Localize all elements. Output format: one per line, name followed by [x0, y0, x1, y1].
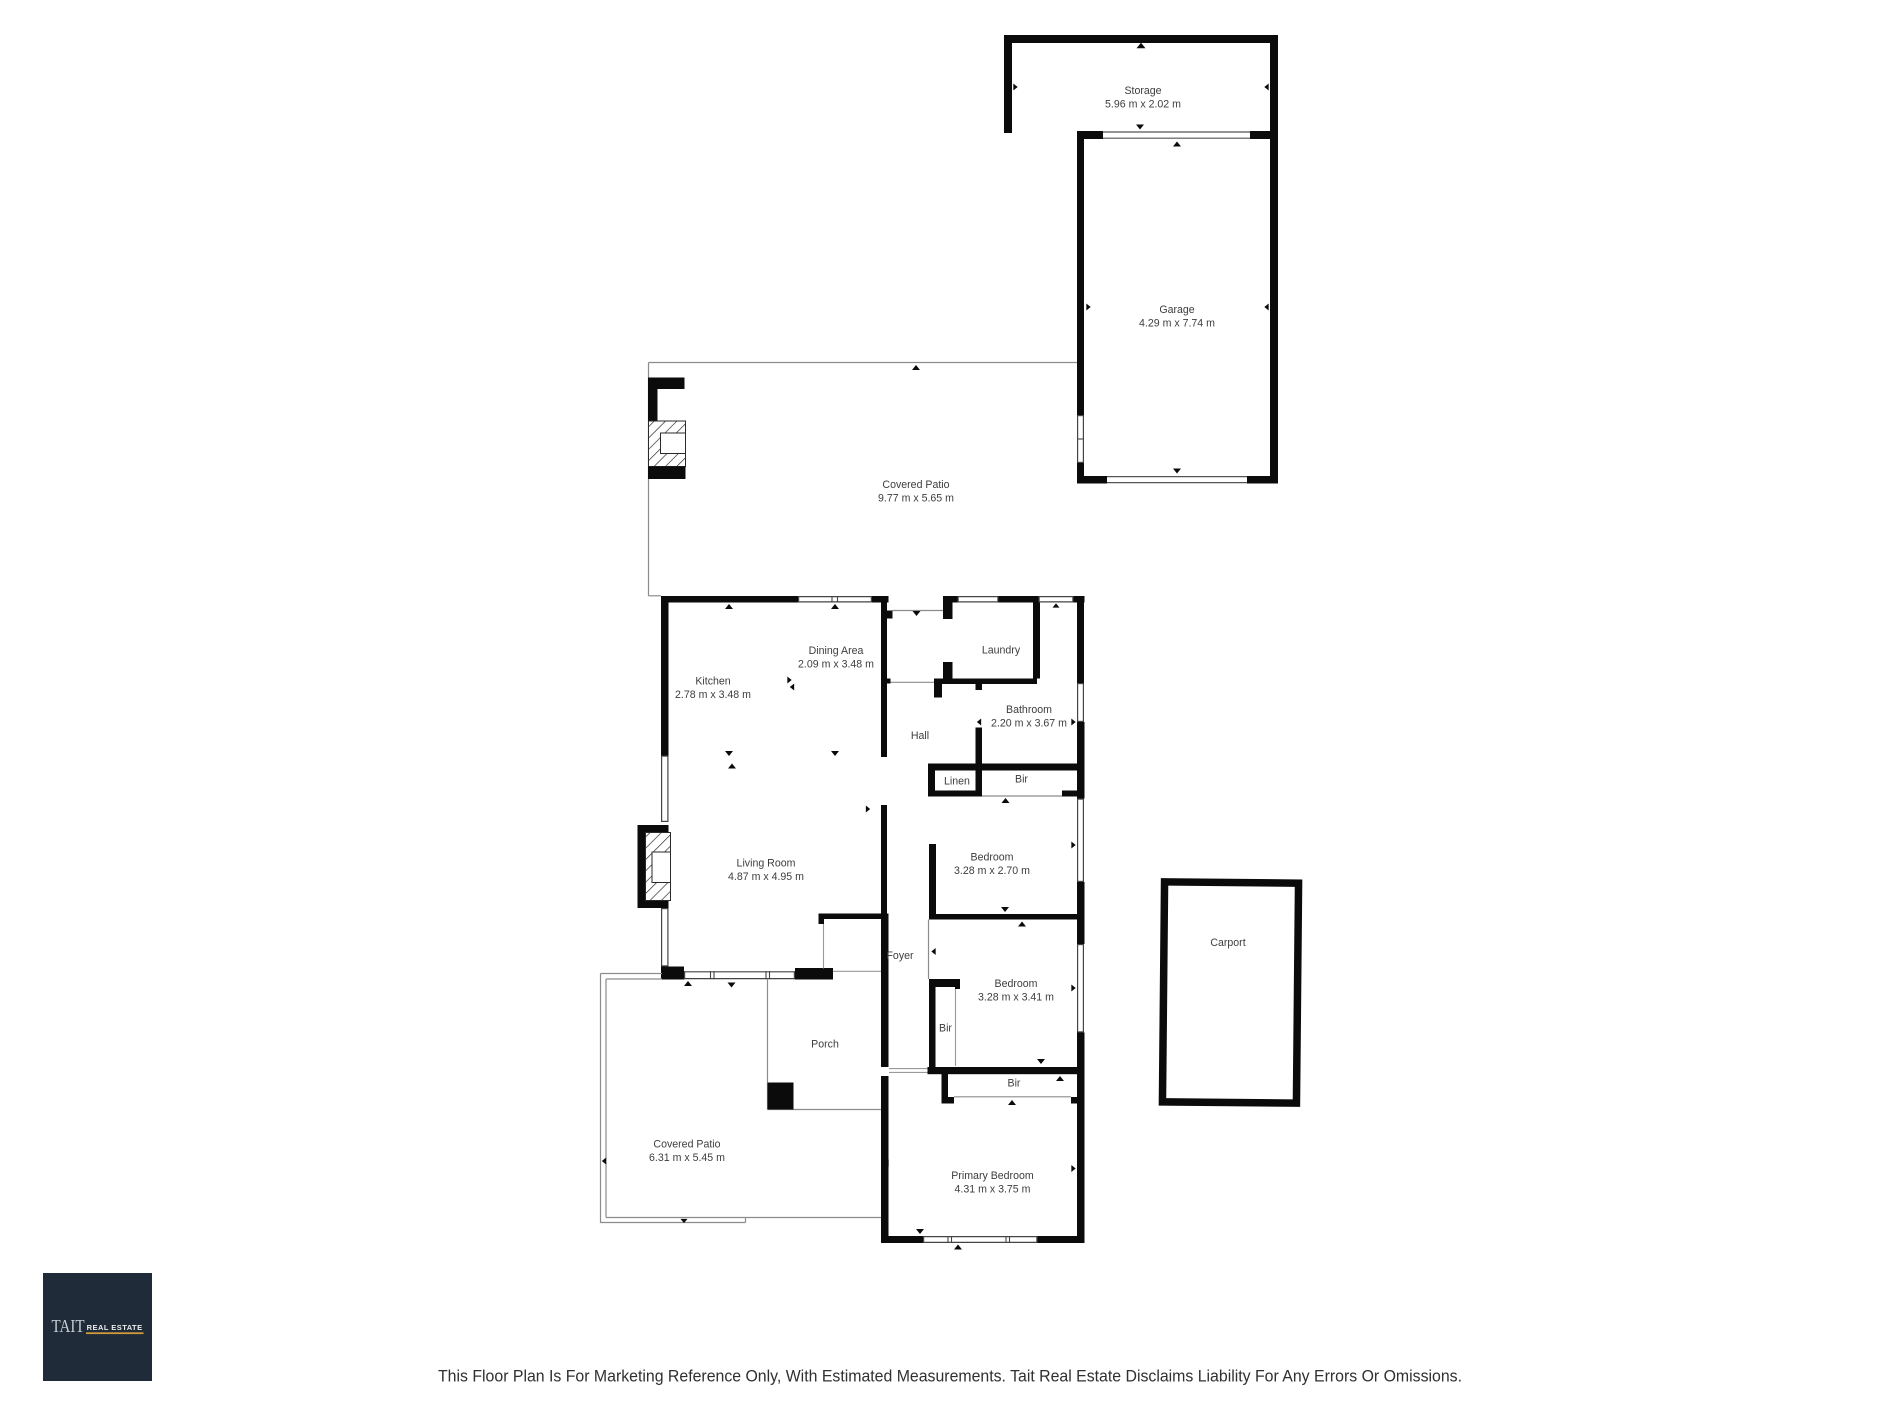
svg-text:Bedroom: Bedroom: [995, 978, 1038, 990]
svg-text:3.28 m x 3.41 m: 3.28 m x 3.41 m: [978, 992, 1054, 1004]
svg-text:4.31 m x 3.75 m: 4.31 m x 3.75 m: [955, 1184, 1031, 1196]
svg-text:2.20 m x 3.67 m: 2.20 m x 3.67 m: [991, 718, 1067, 730]
svg-text:Porch: Porch: [811, 1038, 839, 1050]
svg-text:2.09 m x 3.48 m: 2.09 m x 3.48 m: [798, 659, 874, 671]
svg-text:3.28 m x 2.70 m: 3.28 m x 2.70 m: [954, 865, 1030, 877]
svg-text:Primary Bedroom: Primary Bedroom: [951, 1170, 1034, 1182]
svg-text:Carport: Carport: [1210, 937, 1245, 949]
svg-text:Bir: Bir: [939, 1022, 952, 1034]
svg-text:4.29 m x 7.74 m: 4.29 m x 7.74 m: [1139, 318, 1215, 330]
svg-text:6.31 m x 5.45 m: 6.31 m x 5.45 m: [649, 1152, 725, 1164]
svg-text:Storage: Storage: [1124, 85, 1161, 97]
svg-text:Bedroom: Bedroom: [971, 851, 1014, 863]
svg-text:Bir: Bir: [1008, 1077, 1021, 1089]
svg-text:Linen: Linen: [944, 775, 970, 787]
svg-text:Living Room: Living Room: [737, 857, 796, 869]
svg-text:Hall: Hall: [911, 730, 929, 742]
svg-text:TAIT: TAIT: [52, 1316, 85, 1336]
svg-text:2.78 m x 3.48 m: 2.78 m x 3.48 m: [675, 689, 751, 701]
svg-text:Covered Patio: Covered Patio: [653, 1138, 720, 1150]
svg-text:This Floor Plan Is For Marketi: This Floor Plan Is For Marketing Referen…: [438, 1367, 1462, 1386]
svg-text:5.96 m x 2.02 m: 5.96 m x 2.02 m: [1105, 99, 1181, 111]
svg-text:Kitchen: Kitchen: [695, 675, 730, 687]
svg-text:Bathroom: Bathroom: [1006, 704, 1052, 716]
svg-text:Foyer: Foyer: [886, 950, 914, 962]
svg-text:Dining Area: Dining Area: [809, 645, 864, 657]
svg-text:4.87 m x 4.95 m: 4.87 m x 4.95 m: [728, 871, 804, 883]
svg-text:REAL ESTATE: REAL ESTATE: [87, 1323, 143, 1332]
svg-text:Bir: Bir: [1015, 773, 1028, 785]
svg-text:Covered Patio: Covered Patio: [882, 479, 949, 491]
svg-text:Laundry: Laundry: [982, 644, 1021, 656]
svg-text:Garage: Garage: [1159, 304, 1194, 316]
svg-text:9.77 m x 5.65 m: 9.77 m x 5.65 m: [878, 493, 954, 505]
